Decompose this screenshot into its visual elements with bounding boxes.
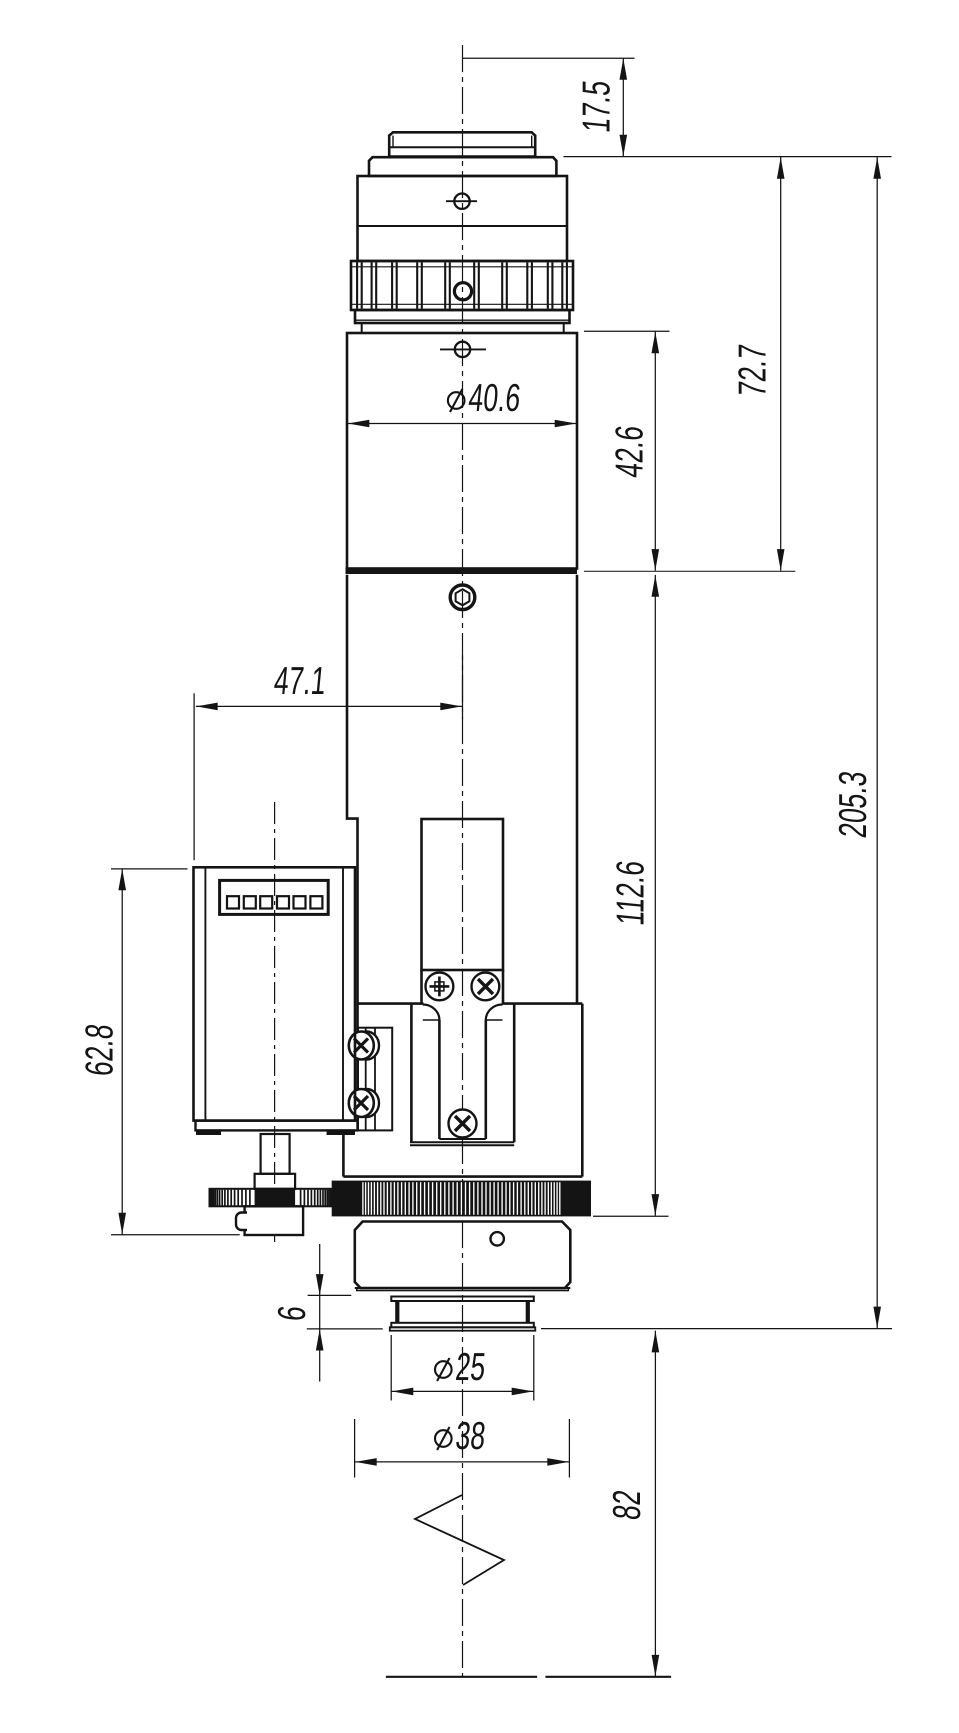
svg-text:25: 25 (454, 1346, 488, 1389)
svg-text:62.8: 62.8 (79, 1022, 122, 1078)
svg-text:17.5: 17.5 (576, 79, 619, 135)
svg-text:205.3: 205.3 (832, 769, 875, 839)
svg-text:40.6: 40.6 (467, 377, 523, 420)
svg-text:82: 82 (606, 1488, 649, 1522)
svg-text:112.6: 112.6 (610, 859, 653, 927)
svg-text:38: 38 (454, 1415, 488, 1458)
svg-text:47.1: 47.1 (272, 660, 328, 703)
svg-text:42.6: 42.6 (609, 424, 652, 480)
svg-text:72.7: 72.7 (732, 343, 775, 399)
